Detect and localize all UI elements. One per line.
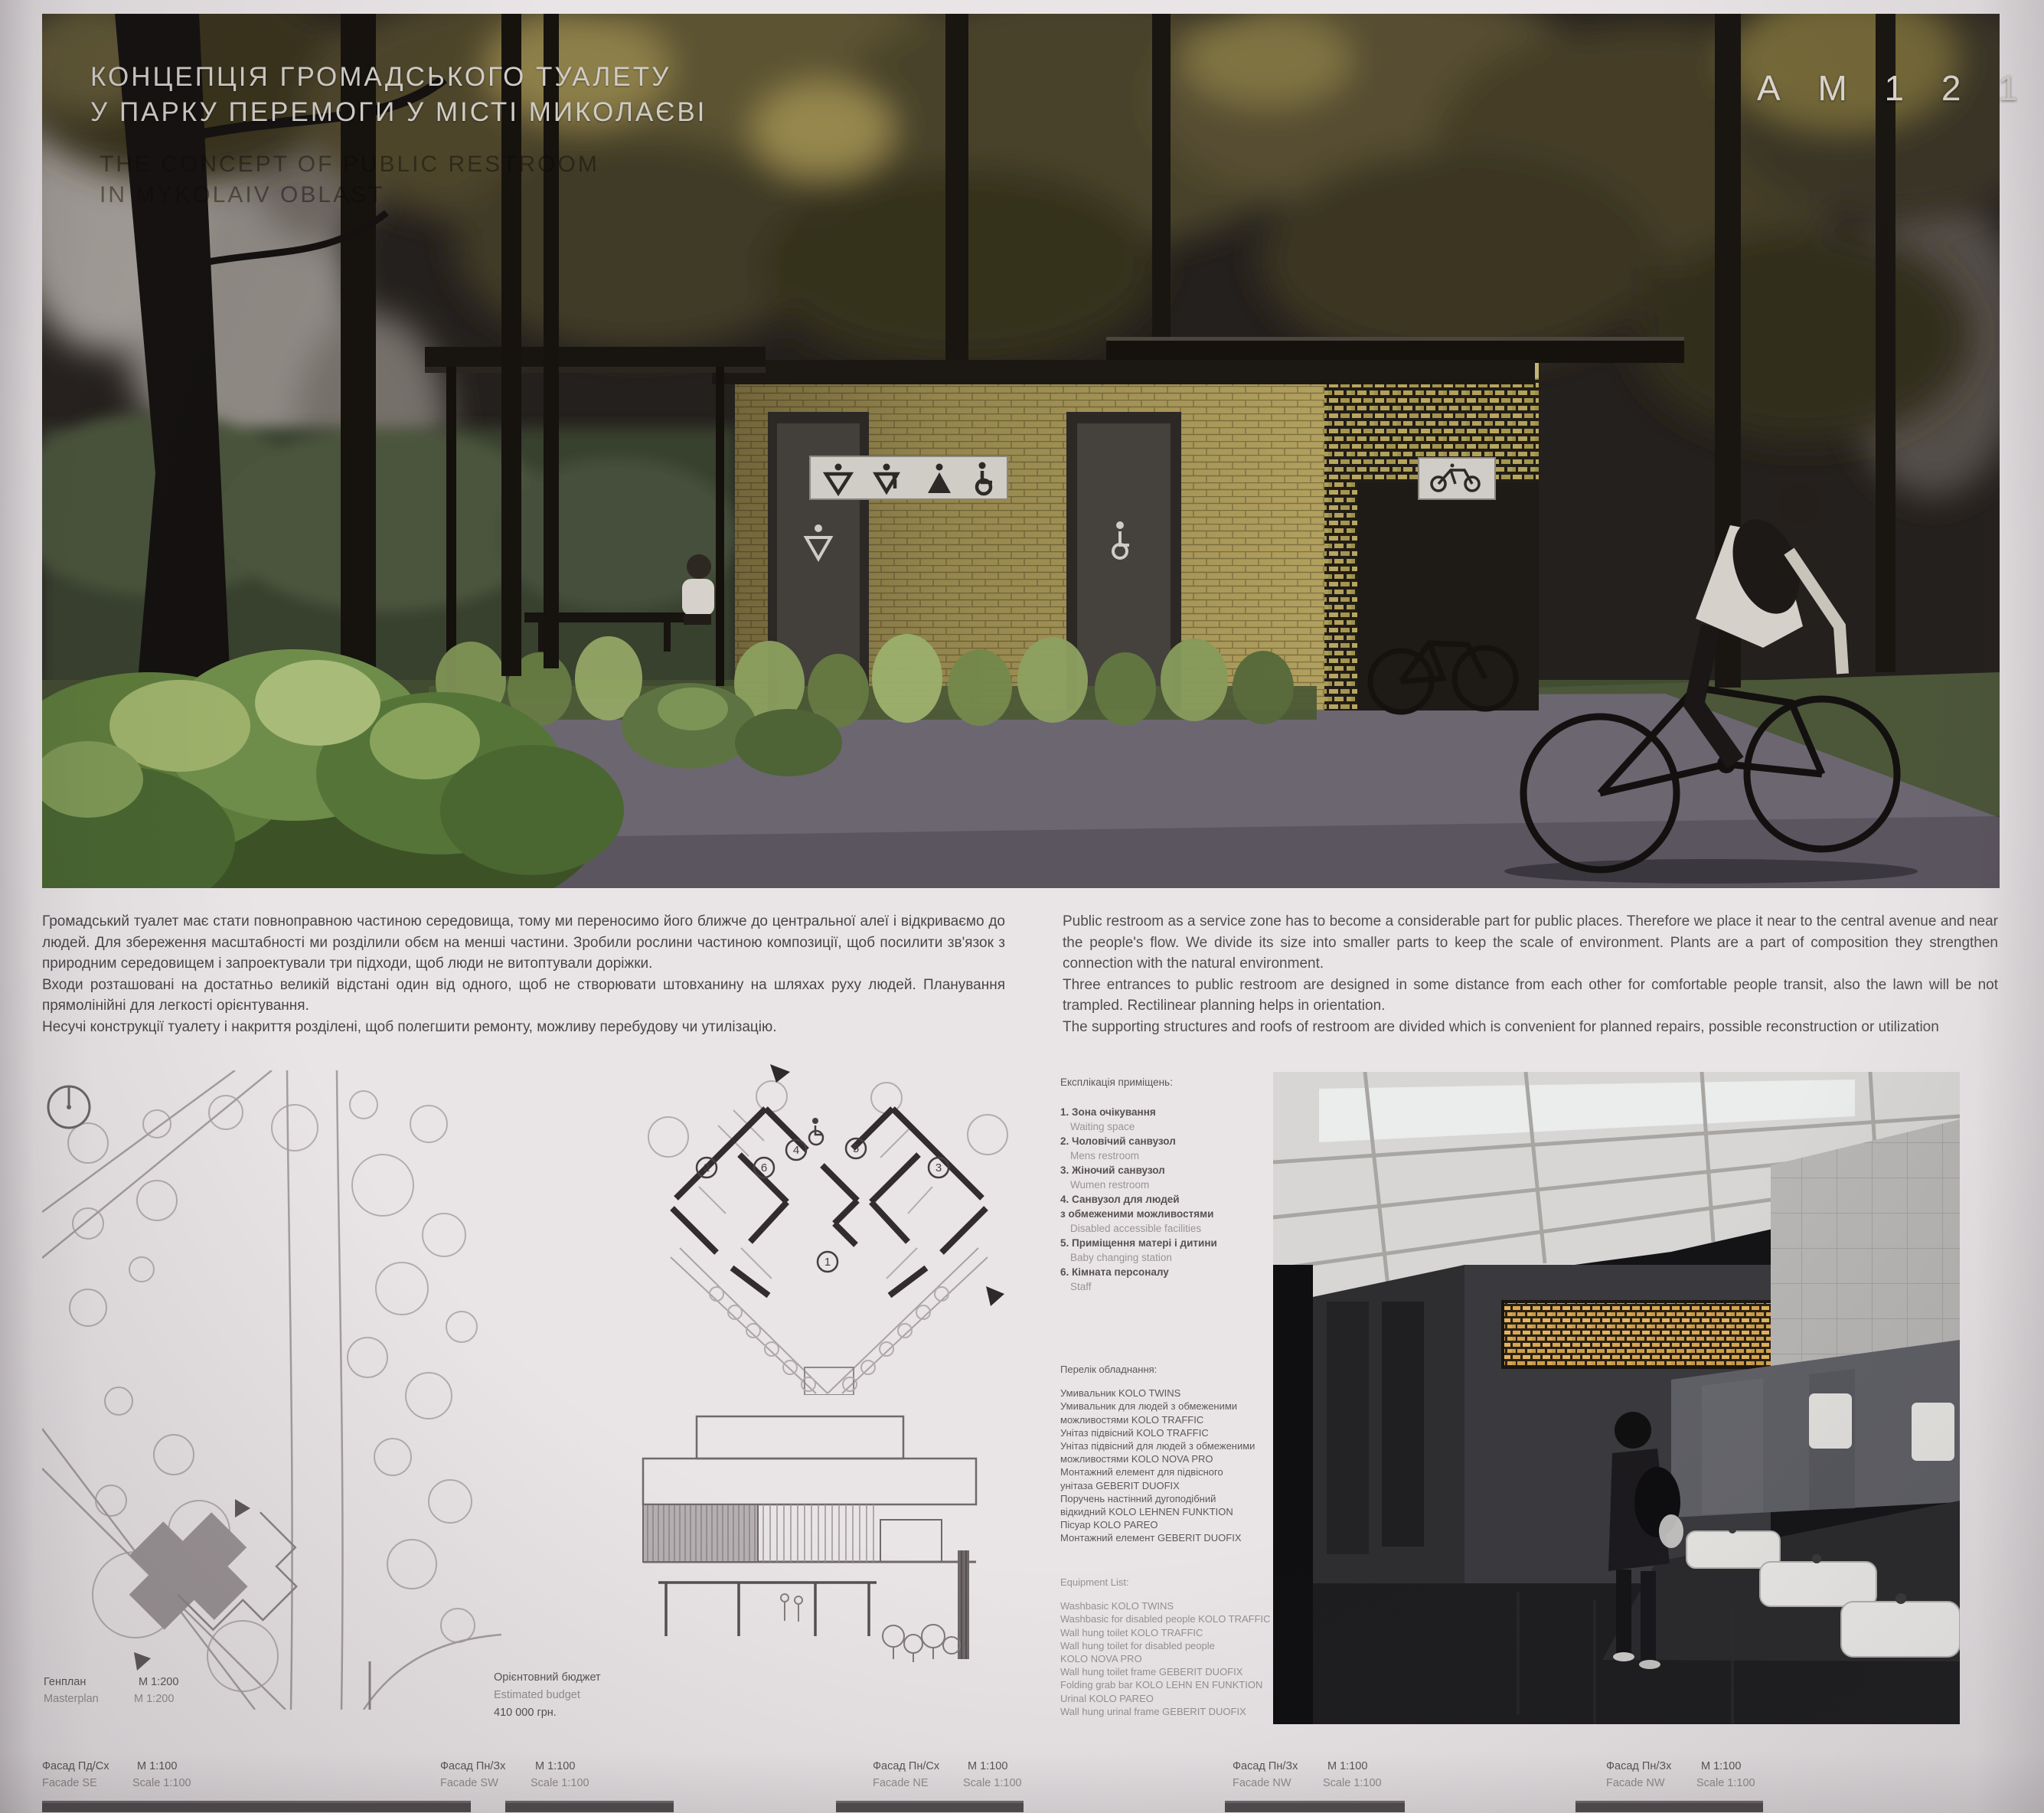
svg-text:2: 2 <box>704 1161 710 1174</box>
board-subtitle-line1: THE CONCEPT OF PUBLIC RESTROOM <box>100 149 599 180</box>
canopy-section <box>658 1583 877 1636</box>
park-rendering <box>42 14 2000 888</box>
genplan-label-uk: Генплан <box>44 1674 113 1690</box>
service-panel <box>1357 482 1539 710</box>
facade-scale-uk: М 1:100 <box>535 1758 575 1775</box>
facade-label-en: Facade SE <box>42 1775 111 1792</box>
room-name-en: Staff <box>1060 1279 1290 1294</box>
intro-en-paragraph: The supporting structures and roofs of r… <box>1063 1017 1998 1038</box>
bicycle-parking-sign <box>1419 458 1495 499</box>
facade-label-uk: Фасад Пн/Сх <box>873 1758 942 1775</box>
facade-scale-en: Scale 1:100 <box>132 1775 191 1792</box>
board-title: КОНЦЕПЦІЯ ГРОМАДСЬКОГО ТУАЛЕТУ У ПАРКУ П… <box>90 60 707 130</box>
budget-label-uk: Орієнтовний бюджет <box>494 1669 601 1687</box>
svg-text:1: 1 <box>824 1256 831 1269</box>
budget-label-en: Estimated budget <box>494 1687 601 1704</box>
elevation-drawing <box>624 1405 991 1736</box>
room-name-en: Disabled accessible facilities <box>1060 1221 1290 1236</box>
seated-person <box>682 554 714 625</box>
room-number: 4. <box>1060 1194 1069 1205</box>
svg-text:4: 4 <box>793 1144 799 1157</box>
svg-text:6: 6 <box>761 1161 767 1174</box>
legend-item: 4. Санвузол для людей з обмеженими можли… <box>1060 1192 1290 1236</box>
facade-scale-en: Scale 1:100 <box>531 1775 589 1792</box>
facade-drawing-cutoff <box>836 1801 1024 1812</box>
genplan-label-en: Masterplan <box>44 1690 113 1707</box>
facade-drawing-cutoff <box>505 1801 674 1812</box>
room-name-uk: Жіночий санвузол <box>1072 1165 1165 1176</box>
facade-label-uk: Фасад Пн/Зх <box>440 1758 509 1775</box>
facade-scale-uk: М 1:100 <box>1701 1758 1741 1775</box>
room-name-uk2: з обмеженими можливостями <box>1060 1207 1290 1221</box>
board-subtitle-line2: IN MYKOLAIV OBLAST <box>100 180 599 211</box>
room-name-uk: Санвузол для людей <box>1072 1194 1180 1205</box>
facade-drawing-cutoff <box>42 1801 471 1812</box>
intro-text-en: Public restroom as a service zone has to… <box>1063 911 1998 1037</box>
room-number: 6. <box>1060 1266 1069 1278</box>
interior-photo <box>1273 1072 1960 1724</box>
north-indicator-icon <box>48 1086 90 1128</box>
room-name-en: Baby changing station <box>1060 1250 1290 1265</box>
intro-en-paragraph: Three entrances to public restroom are d… <box>1063 975 1998 1017</box>
legend-item: 6. Кімната персоналу Staff <box>1060 1265 1290 1294</box>
facade-scale-en: Scale 1:100 <box>963 1775 1022 1792</box>
facade-caption-ne: Фасад Пн/СхМ 1:100 Facade NEScale 1:100 <box>873 1758 1022 1792</box>
facade-scale-uk: М 1:100 <box>1327 1758 1367 1775</box>
intro-en-paragraph: Public restroom as a service zone has to… <box>1063 911 1998 975</box>
intro-text-uk: Громадський туалет має стати повноправно… <box>42 911 1005 1037</box>
room-name-en: Mens restroom <box>1060 1148 1290 1163</box>
room-name-uk: Кімната персоналу <box>1072 1266 1169 1278</box>
board-subtitle: THE CONCEPT OF PUBLIC RESTROOM IN MYKOLA… <box>100 149 599 211</box>
facade-label-uk: Фасад Пн/Зх <box>1606 1758 1675 1775</box>
site-plan-trees <box>68 1091 477 1691</box>
room-name-uk: Зона очікування <box>1072 1106 1156 1118</box>
room-number: 5. <box>1060 1237 1069 1249</box>
facade-label-uk: Фасад Пд/Сх <box>42 1758 111 1775</box>
facade-caption-sw: Фасад Пн/ЗхМ 1:100 Facade SWScale 1:100 <box>440 1758 589 1792</box>
figure-sketches <box>781 1594 802 1622</box>
rooms-legend: Експлікація приміщень: 1. Зона очікуванн… <box>1060 1075 1290 1294</box>
genplan-caption: Генплан М 1:200 Masterplan M 1:200 <box>44 1674 178 1707</box>
legend-item: 1. Зона очікування Waiting space <box>1060 1105 1290 1134</box>
plan-wheelchair-icon <box>809 1118 823 1145</box>
facade-label-en: Facade NW <box>1233 1775 1301 1792</box>
facade-scale-en: Scale 1:100 <box>1696 1775 1755 1792</box>
facade-label-en: Facade SW <box>440 1775 509 1792</box>
room-number: 1. <box>1060 1106 1069 1118</box>
louver-lines <box>763 1504 873 1562</box>
svg-text:5: 5 <box>853 1142 859 1155</box>
facade-label-en: Facade NW <box>1606 1775 1675 1792</box>
rooms-legend-title: Експлікація приміщень: <box>1060 1075 1290 1089</box>
facade-scale-en: Scale 1:100 <box>1323 1775 1382 1792</box>
main-roof-slab <box>712 360 1535 384</box>
svg-text:3: 3 <box>935 1161 942 1174</box>
facade-caption-nw1: Фасад Пн/ЗхМ 1:100 Facade NWScale 1:100 <box>1233 1758 1382 1792</box>
facade-scale-uk: М 1:100 <box>137 1758 177 1775</box>
building-footprint <box>109 1468 315 1674</box>
floor-plan-drawing: 1 2 3 4 5 6 <box>626 1064 1032 1395</box>
right-roof-slab <box>1106 337 1684 363</box>
room-number: 2. <box>1060 1135 1069 1147</box>
planting-sketch <box>883 1625 960 1662</box>
budget-value: 410 000 грн. <box>494 1704 601 1722</box>
intro-uk-paragraph: Громадський туалет має стати повноправно… <box>42 911 1005 975</box>
genplan-scale-en: M 1:200 <box>134 1690 174 1707</box>
facade-drawing-cutoff <box>1225 1801 1405 1812</box>
legend-item: 2. Чоловічий санвузол Mens restroom <box>1060 1134 1290 1163</box>
board-code: А М 1 2 1 5 <box>1757 67 2044 109</box>
legend-item: 5. Приміщення матері і дитини Baby chang… <box>1060 1236 1290 1265</box>
board-title-line2: У ПАРКУ ПЕРЕМОГИ У МІСТІ МИКОЛАЄВІ <box>90 95 707 130</box>
glowing-brick-lattice <box>1503 1302 1778 1367</box>
room-name-uk: Чоловічий санвузол <box>1072 1135 1176 1147</box>
genplan-scale-uk: М 1:200 <box>139 1674 178 1690</box>
intro-uk-paragraph: Несучі конструкції туалету і накриття ро… <box>42 1017 1005 1038</box>
legend-item: 3. Жіночий санвузол Wumen restroom <box>1060 1163 1290 1192</box>
facade-label-en: Facade NE <box>873 1775 942 1792</box>
room-name-en: Waiting space <box>1060 1119 1290 1134</box>
facade-label-uk: Фасад Пн/Зх <box>1233 1758 1301 1775</box>
budget-note: Орієнтовний бюджет Estimated budget 410 … <box>494 1669 601 1722</box>
room-name-uk: Приміщення матері і дитини <box>1072 1237 1217 1249</box>
facade-scale-uk: М 1:100 <box>968 1758 1007 1775</box>
room-number: 3. <box>1060 1165 1069 1176</box>
room-name-en: Wumen restroom <box>1060 1178 1290 1192</box>
facade-caption-nw2: Фасад Пн/ЗхМ 1:100 Facade NWScale 1:100 <box>1606 1758 1755 1792</box>
presentation-board-photo: { "board": { "code": "А М 1 2 1 5", "tit… <box>0 0 2044 1813</box>
facade-drawing-cutoff <box>1575 1801 1763 1812</box>
hatched-roof-band <box>643 1504 758 1562</box>
site-plan-drawing <box>42 1070 501 1710</box>
plaza-outline <box>671 1248 988 1395</box>
facade-caption-se: Фасад Пд/СхМ 1:100 Facade SEScale 1:100 <box>42 1758 191 1792</box>
board-title-line1: КОНЦЕПЦІЯ ГРОМАДСЬКОГО ТУАЛЕТУ <box>90 60 707 95</box>
intro-uk-paragraph: Входи розташовані на достатньо великій в… <box>42 975 1005 1017</box>
restroom-sign <box>810 456 1007 499</box>
